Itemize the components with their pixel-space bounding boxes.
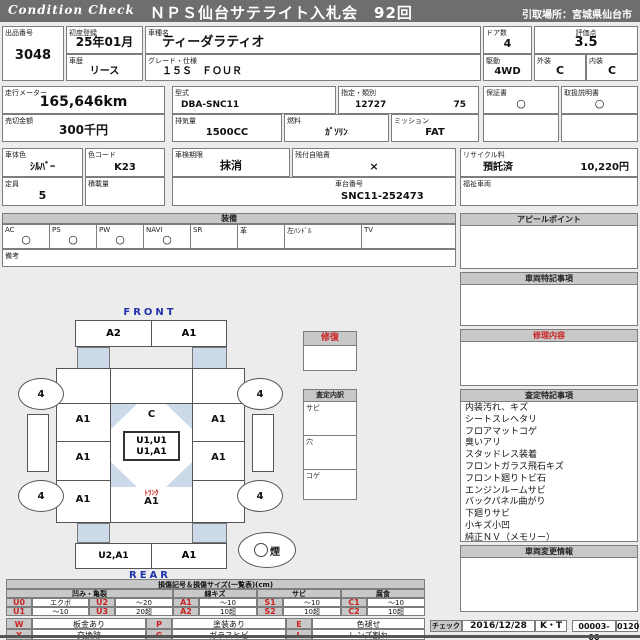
damage-code-u1: U1 bbox=[6, 607, 32, 616]
field-inspection-expiry: 車検期限 抹消 bbox=[172, 148, 290, 177]
field-body-color: 車体色 ｼﾙﾊﾞｰ bbox=[2, 148, 83, 177]
field-transmission-value: FAT bbox=[392, 127, 478, 138]
condition-check-logo: Condition Check bbox=[8, 3, 135, 17]
field-liability-insurance: 残付自賠責 × bbox=[292, 148, 456, 177]
damage-size-u3: 20超 bbox=[115, 607, 173, 616]
damage-code-u3: U3 bbox=[89, 607, 115, 616]
field-interior-grade-value: C bbox=[587, 64, 637, 77]
doc-number: 00003-00 bbox=[572, 620, 616, 632]
section-vehicle-notes-title: 車両特記事項 bbox=[461, 273, 637, 285]
rear-bumper-left-panel: U2,A1 bbox=[75, 543, 152, 569]
field-sellout-price: 売切金額 300千円 bbox=[2, 114, 165, 142]
warranty-extra-cell bbox=[483, 114, 559, 142]
field-seating-label: 定員 bbox=[5, 179, 19, 189]
field-class-no-label: 指定・類別 bbox=[341, 88, 376, 98]
damage-size-u2: 〜20 bbox=[115, 598, 173, 607]
field-class-no: 指定・類別 12727 75 bbox=[338, 86, 479, 114]
field-transmission: ミッション FAT bbox=[391, 114, 479, 142]
equipment-leather-label: 革 bbox=[240, 226, 247, 236]
smoke-circle-icon bbox=[254, 543, 268, 557]
field-model-name: 車種名 ティーダラティオ bbox=[145, 26, 481, 54]
rear-window-band bbox=[111, 462, 192, 487]
rear-right-glass-corner bbox=[192, 523, 227, 543]
section-repair: 修理内容 bbox=[460, 329, 638, 386]
damage-code-c2: C2 bbox=[341, 607, 367, 616]
equipment-sr: SR bbox=[190, 224, 238, 249]
front-bumper-left-panel: A2 bbox=[75, 320, 152, 347]
field-inspection-expiry-value: 抹消 bbox=[173, 157, 289, 173]
field-fuel: 燃料 ｶﾞｿﾘﾝ bbox=[284, 114, 389, 142]
check-date: 2016/12/28 bbox=[462, 620, 535, 632]
field-liability-insurance-value: × bbox=[293, 160, 455, 173]
equipment-left-handle: 左ﾊﾝﾄﾞﾙ bbox=[284, 224, 362, 249]
manual-extra-cell bbox=[561, 114, 638, 142]
field-drive-label: 駆動 bbox=[486, 56, 500, 66]
rear-window-corner-right bbox=[166, 462, 192, 487]
field-drive-value: 4WD bbox=[484, 66, 531, 77]
field-car-history-value: リース bbox=[67, 62, 142, 77]
field-seating: 定員 5 bbox=[2, 177, 83, 206]
equipment-remarks-label: 備考 bbox=[5, 251, 19, 261]
section-appeal-title: アピールポイント bbox=[461, 214, 637, 226]
front-bumper-right-panel: A1 bbox=[151, 320, 227, 347]
damage-code-u0: U0 bbox=[6, 598, 32, 607]
section-vehicle-notes: 車両特記事項 bbox=[460, 272, 638, 326]
center-damage-line2: U1,A1 bbox=[125, 447, 178, 458]
section-repair-title: 修理内容 bbox=[461, 330, 637, 342]
field-body-color-value: ｼﾙﾊﾞｰ bbox=[3, 158, 82, 173]
field-model-code-value: DBA-SNC11 bbox=[173, 100, 335, 110]
section-repair-history: 修復 bbox=[303, 331, 357, 371]
equipment-ac-value: ○ bbox=[3, 233, 49, 246]
field-owners-manual: 取扱説明書 ○ bbox=[561, 86, 638, 114]
left-door-open-rect bbox=[27, 414, 49, 472]
assessment-detail-burn-row: コゲ bbox=[304, 469, 356, 502]
section-change-info-title: 車両変更情報 bbox=[461, 546, 637, 558]
equipment-ac: AC ○ bbox=[2, 224, 50, 249]
diagram-front-label: FRONT bbox=[95, 307, 205, 318]
roof-mark: C bbox=[111, 409, 192, 420]
left-door-line-2 bbox=[56, 480, 111, 481]
auction-condition-sheet: Condition Check ＮＰＳ仙台サテライト入札会 92回 引取場所：宮… bbox=[0, 0, 640, 640]
center-damage-line1: U1,U1 bbox=[125, 436, 178, 447]
damage-size-s2: 10超 bbox=[283, 607, 341, 616]
smoke-mark-badge: 煙 bbox=[238, 532, 296, 568]
field-seating-value: 5 bbox=[3, 189, 82, 202]
field-owners-manual-value: ○ bbox=[562, 97, 637, 110]
field-first-registration-value: 25年01月 bbox=[67, 33, 142, 50]
damage-table-title: 損傷記号＆損傷サイズ(一覧表)(cm) bbox=[6, 579, 425, 589]
legend-code-p: P bbox=[146, 618, 172, 629]
field-first-registration: 初度登録 25年01月 bbox=[66, 26, 143, 54]
smoke-kanji: 煙 bbox=[270, 543, 280, 558]
legend-text-p: 塗装あり bbox=[172, 618, 286, 629]
front-right-glass-corner bbox=[192, 347, 227, 369]
damage-size-c1: 〜10 bbox=[367, 598, 425, 607]
page-code: 0120 bbox=[616, 620, 638, 632]
body-divider-right bbox=[192, 368, 193, 523]
damage-size-s1: 〜10 bbox=[283, 598, 341, 607]
damage-group-rust: サビ bbox=[257, 589, 341, 598]
right-door-open-rect bbox=[252, 414, 274, 472]
assessment-detail-rust-row: サビ bbox=[304, 402, 356, 435]
damage-size-a2: 10超 bbox=[199, 607, 257, 616]
field-grade: グレード・仕様 １５Ｓ ＦＯＵＲ bbox=[145, 54, 481, 81]
damage-code-c1: C1 bbox=[341, 598, 367, 607]
damage-code-a1: A1 bbox=[173, 598, 199, 607]
field-welfare-vehicle: 福祉車両 bbox=[460, 177, 638, 206]
field-grade-value: １５Ｓ ＦＯＵＲ bbox=[146, 62, 480, 77]
damage-code-s2: S2 bbox=[257, 607, 283, 616]
equipment-navi-value: ○ bbox=[144, 233, 190, 246]
section-vehicle-notes-body bbox=[461, 285, 637, 287]
bottom-divider bbox=[0, 635, 640, 638]
section-appeal: アピールポイント bbox=[460, 213, 638, 269]
right-panel-mark-2: A1 bbox=[194, 452, 243, 463]
field-exterior-grade: 外装 C bbox=[534, 54, 586, 81]
equipment-ps-value: ○ bbox=[50, 233, 96, 246]
field-odometer-value: 165,646km bbox=[3, 94, 164, 110]
front-left-glass-corner bbox=[77, 347, 110, 369]
check-inspector: K・T bbox=[535, 620, 567, 632]
field-recycle-status-value: 預託済 bbox=[475, 158, 513, 173]
damage-group-dent: 凹み・亀裂 bbox=[6, 589, 173, 598]
section-repair-body bbox=[461, 342, 637, 344]
equipment-tv-label: TV bbox=[364, 226, 373, 234]
tire-rear-right: 4 bbox=[237, 480, 283, 512]
left-panel-mark-2: A1 bbox=[58, 452, 108, 463]
field-recycle-fee: リサイクル料 預託済 10,220円 bbox=[460, 148, 638, 177]
field-chassis-no-label: 車台番号 bbox=[335, 179, 363, 189]
equipment-ps: PS ○ bbox=[49, 224, 97, 249]
field-model-code: 型式 DBA-SNC11 bbox=[172, 86, 336, 114]
damage-size-u1: 〜10 bbox=[32, 607, 89, 616]
field-recycle-amount-value: 10,220円 bbox=[580, 158, 629, 173]
legend-code-w: W bbox=[6, 618, 32, 629]
field-lot-no-value: 3048 bbox=[3, 48, 63, 63]
damage-size-u0: エクボ bbox=[32, 598, 89, 607]
damage-size-c2: 10超 bbox=[367, 607, 425, 616]
field-model-code-label: 型式 bbox=[175, 88, 189, 98]
pickup-location: 引取場所：宮城県仙台市 bbox=[522, 6, 632, 21]
field-load-capacity-label: 積載量 bbox=[88, 179, 109, 189]
field-interior-grade: 内装 C bbox=[586, 54, 638, 81]
damage-group-scratch: 線キズ bbox=[173, 589, 257, 598]
assessment-detail-rust-label: サビ bbox=[306, 403, 320, 413]
field-displacement-value: 1500CC bbox=[173, 127, 281, 138]
legend-text-w: 板金あり bbox=[32, 618, 146, 629]
field-odometer: 走行メーター 165,646km bbox=[2, 86, 165, 114]
field-fuel-value: ｶﾞｿﾘﾝ bbox=[285, 125, 388, 138]
assessment-detail-hole-label: 穴 bbox=[306, 437, 313, 447]
assessment-notes-list: 内装汚れ、キズシートスレヘタリフロアマットコゲ臭いアリスタッドレス装着フロントガ… bbox=[461, 402, 637, 546]
field-sellout-price-value: 300千円 bbox=[3, 121, 164, 138]
center-damage-box: U1,U1 U1,A1 bbox=[123, 431, 180, 461]
equipment-remarks: 備考 bbox=[2, 249, 456, 267]
field-model-name-value: ティーダラティオ bbox=[146, 31, 480, 50]
equipment-header: 装備 bbox=[2, 213, 456, 224]
field-displacement-label: 排気量 bbox=[175, 116, 196, 126]
field-class-value: 75 bbox=[453, 100, 466, 110]
section-repair-history-title: 修復 bbox=[304, 332, 356, 346]
right-panel-mark-1: A1 bbox=[194, 414, 243, 425]
damage-size-a1: 〜10 bbox=[199, 598, 257, 607]
check-label: チェック bbox=[430, 620, 462, 632]
field-exterior-grade-value: C bbox=[535, 64, 585, 77]
field-color-code-label: 色コード bbox=[88, 150, 116, 160]
section-assessment: 査定特記事項 内装汚れ、キズシートスレヘタリフロアマットコゲ臭いアリスタッドレス… bbox=[460, 389, 638, 542]
legend-text-e: 色褪せ bbox=[312, 618, 425, 629]
field-car-history: 車歴 リース bbox=[66, 54, 143, 81]
damage-code-u2: U2 bbox=[89, 598, 115, 607]
field-lot-no: 出品番号 3048 bbox=[2, 26, 64, 81]
auction-title: ＮＰＳ仙台サテライト入札会 92回 bbox=[150, 2, 413, 23]
equipment-sr-label: SR bbox=[193, 226, 202, 234]
damage-code-s1: S1 bbox=[257, 598, 283, 607]
field-liability-insurance-label: 残付自賠責 bbox=[295, 150, 330, 160]
equipment-left-handle-label: 左ﾊﾝﾄﾞﾙ bbox=[287, 226, 312, 236]
legend-code-e: E bbox=[286, 618, 312, 629]
section-assessment-detail: 査定内訳 サビ 穴 コゲ bbox=[303, 389, 357, 500]
field-score: 評価点 3.5 bbox=[534, 26, 638, 54]
equipment-pw: PW ○ bbox=[96, 224, 144, 249]
field-color-code: 色コード K23 bbox=[85, 148, 165, 177]
field-displacement: 排気量 1500CC bbox=[172, 114, 282, 142]
assessment-detail-hole-row: 穴 bbox=[304, 435, 356, 469]
damage-code-a2: A2 bbox=[173, 607, 199, 616]
assessment-detail-burn-label: コゲ bbox=[306, 471, 320, 481]
field-score-value: 3.5 bbox=[535, 35, 637, 50]
field-chassis-no-value: SNC11-252473 bbox=[173, 191, 455, 202]
equipment-navi: NAVI ○ bbox=[143, 224, 191, 249]
left-panel-mark-3: A1 bbox=[58, 494, 108, 505]
section-change-info: 車両変更情報 bbox=[460, 545, 638, 612]
right-door-line-1 bbox=[192, 441, 245, 442]
left-door-line-1 bbox=[56, 441, 111, 442]
section-change-info-body bbox=[461, 558, 637, 560]
rear-window-corner-left bbox=[111, 462, 137, 487]
equipment-pw-value: ○ bbox=[97, 233, 143, 246]
field-warranty-book: 保証書 ○ bbox=[483, 86, 559, 114]
field-doors: ドア数 4 bbox=[483, 26, 532, 54]
rear-bumper-right-panel: A1 bbox=[151, 543, 227, 569]
section-assessment-detail-title: 査定内訳 bbox=[304, 390, 356, 402]
tire-front-right: 4 bbox=[237, 378, 283, 410]
equipment-tv: TV bbox=[361, 224, 456, 249]
field-doors-value: 4 bbox=[484, 37, 531, 50]
trunk-mark: A1 bbox=[111, 496, 192, 507]
equipment-leather: 革 bbox=[237, 224, 285, 249]
field-designation-value: 12727 bbox=[347, 100, 386, 110]
field-color-code-value: K23 bbox=[86, 162, 164, 173]
field-welfare-vehicle-label: 福祉車両 bbox=[463, 179, 491, 189]
field-warranty-book-value: ○ bbox=[484, 97, 558, 110]
field-transmission-label: ミッション bbox=[394, 116, 429, 126]
rear-left-glass-corner bbox=[77, 523, 110, 543]
right-door-line-2 bbox=[192, 480, 245, 481]
field-drive: 駆動 4WD bbox=[483, 54, 532, 81]
tire-rear-left: 4 bbox=[18, 480, 64, 512]
field-load-capacity: 積載量 bbox=[85, 177, 165, 206]
damage-group-corrosion: 腐食 bbox=[341, 589, 425, 598]
tire-front-left: 4 bbox=[18, 378, 64, 410]
left-panel-mark-1: A1 bbox=[58, 414, 108, 425]
field-lot-no-label: 出品番号 bbox=[5, 28, 33, 38]
section-appeal-body bbox=[461, 226, 637, 228]
field-chassis-no: 車台番号 SNC11-252473 bbox=[172, 177, 456, 206]
section-assessment-title: 査定特記事項 bbox=[461, 390, 637, 402]
title-bar: Condition Check ＮＰＳ仙台サテライト入札会 92回 引取場所：宮… bbox=[0, 0, 640, 22]
